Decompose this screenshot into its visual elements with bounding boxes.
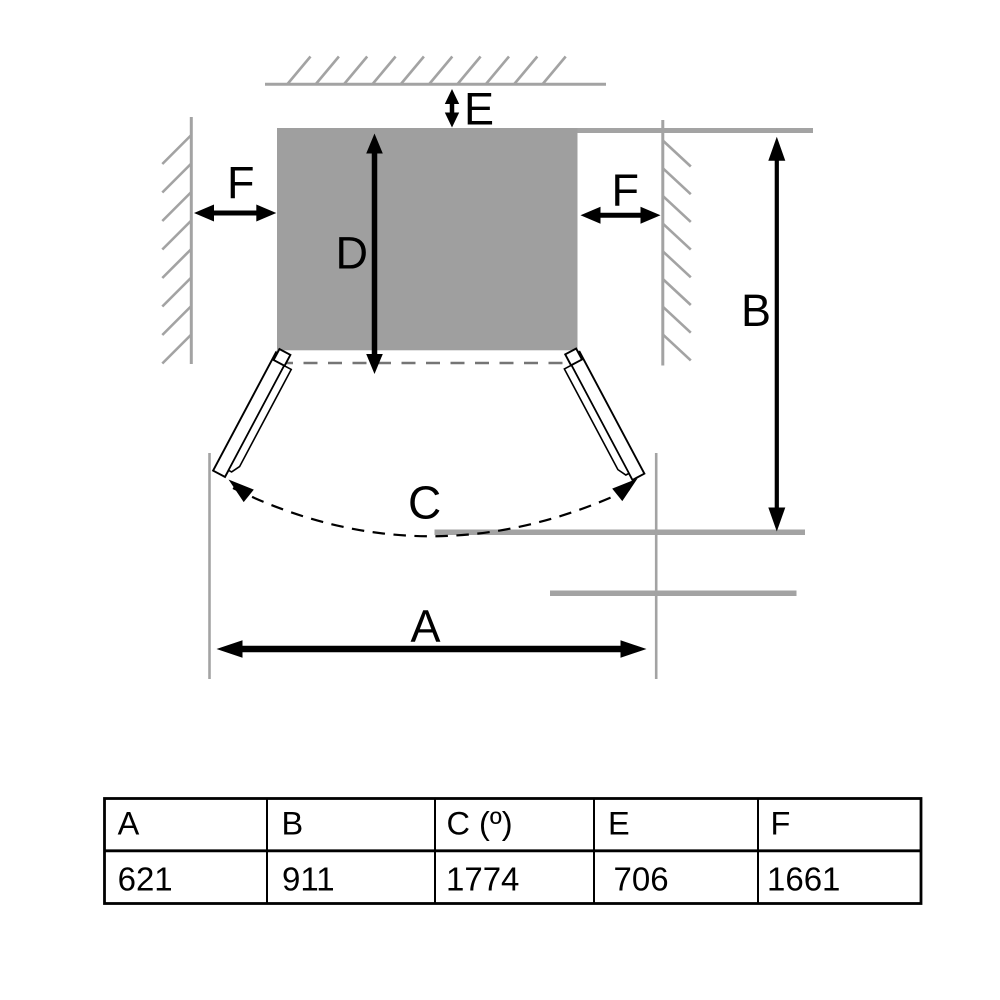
svg-text:621: 621 [118, 861, 173, 898]
svg-text:A: A [411, 601, 441, 652]
svg-text:A: A [118, 806, 140, 842]
svg-text:1661: 1661 [767, 861, 840, 898]
svg-text:C (º): C (º) [447, 806, 513, 842]
svg-text:D: D [336, 228, 369, 279]
svg-text:706: 706 [614, 861, 669, 898]
svg-text:911: 911 [282, 861, 335, 898]
svg-text:F: F [612, 165, 640, 216]
svg-text:E: E [464, 84, 494, 135]
svg-text:C: C [408, 477, 441, 529]
svg-text:1774: 1774 [446, 861, 519, 898]
svg-text:B: B [282, 806, 304, 842]
svg-text:B: B [741, 285, 771, 336]
svg-text:E: E [608, 806, 630, 842]
svg-text:F: F [227, 157, 255, 208]
svg-text:F: F [771, 806, 791, 842]
